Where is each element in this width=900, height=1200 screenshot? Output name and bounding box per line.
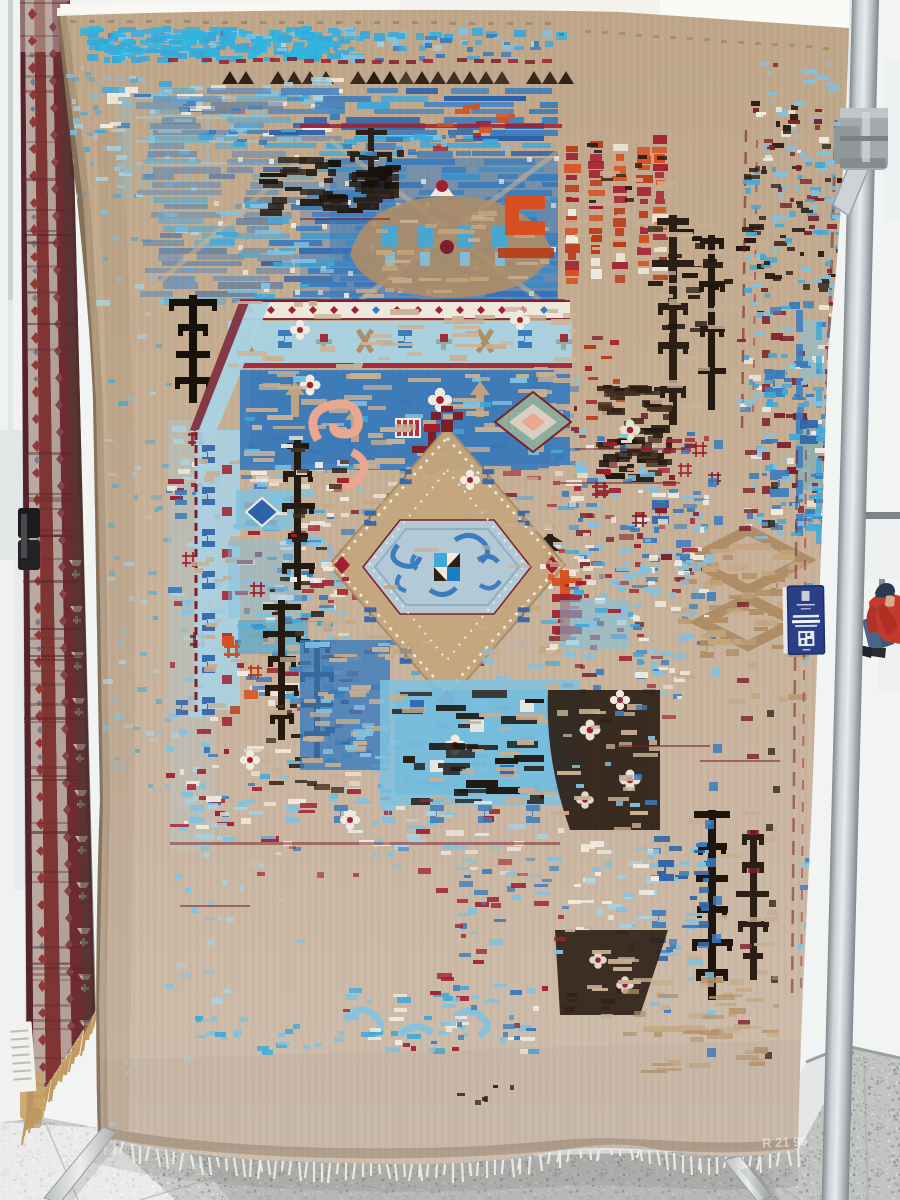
- svg-text:R 21 99: R 21 99: [762, 1134, 808, 1151]
